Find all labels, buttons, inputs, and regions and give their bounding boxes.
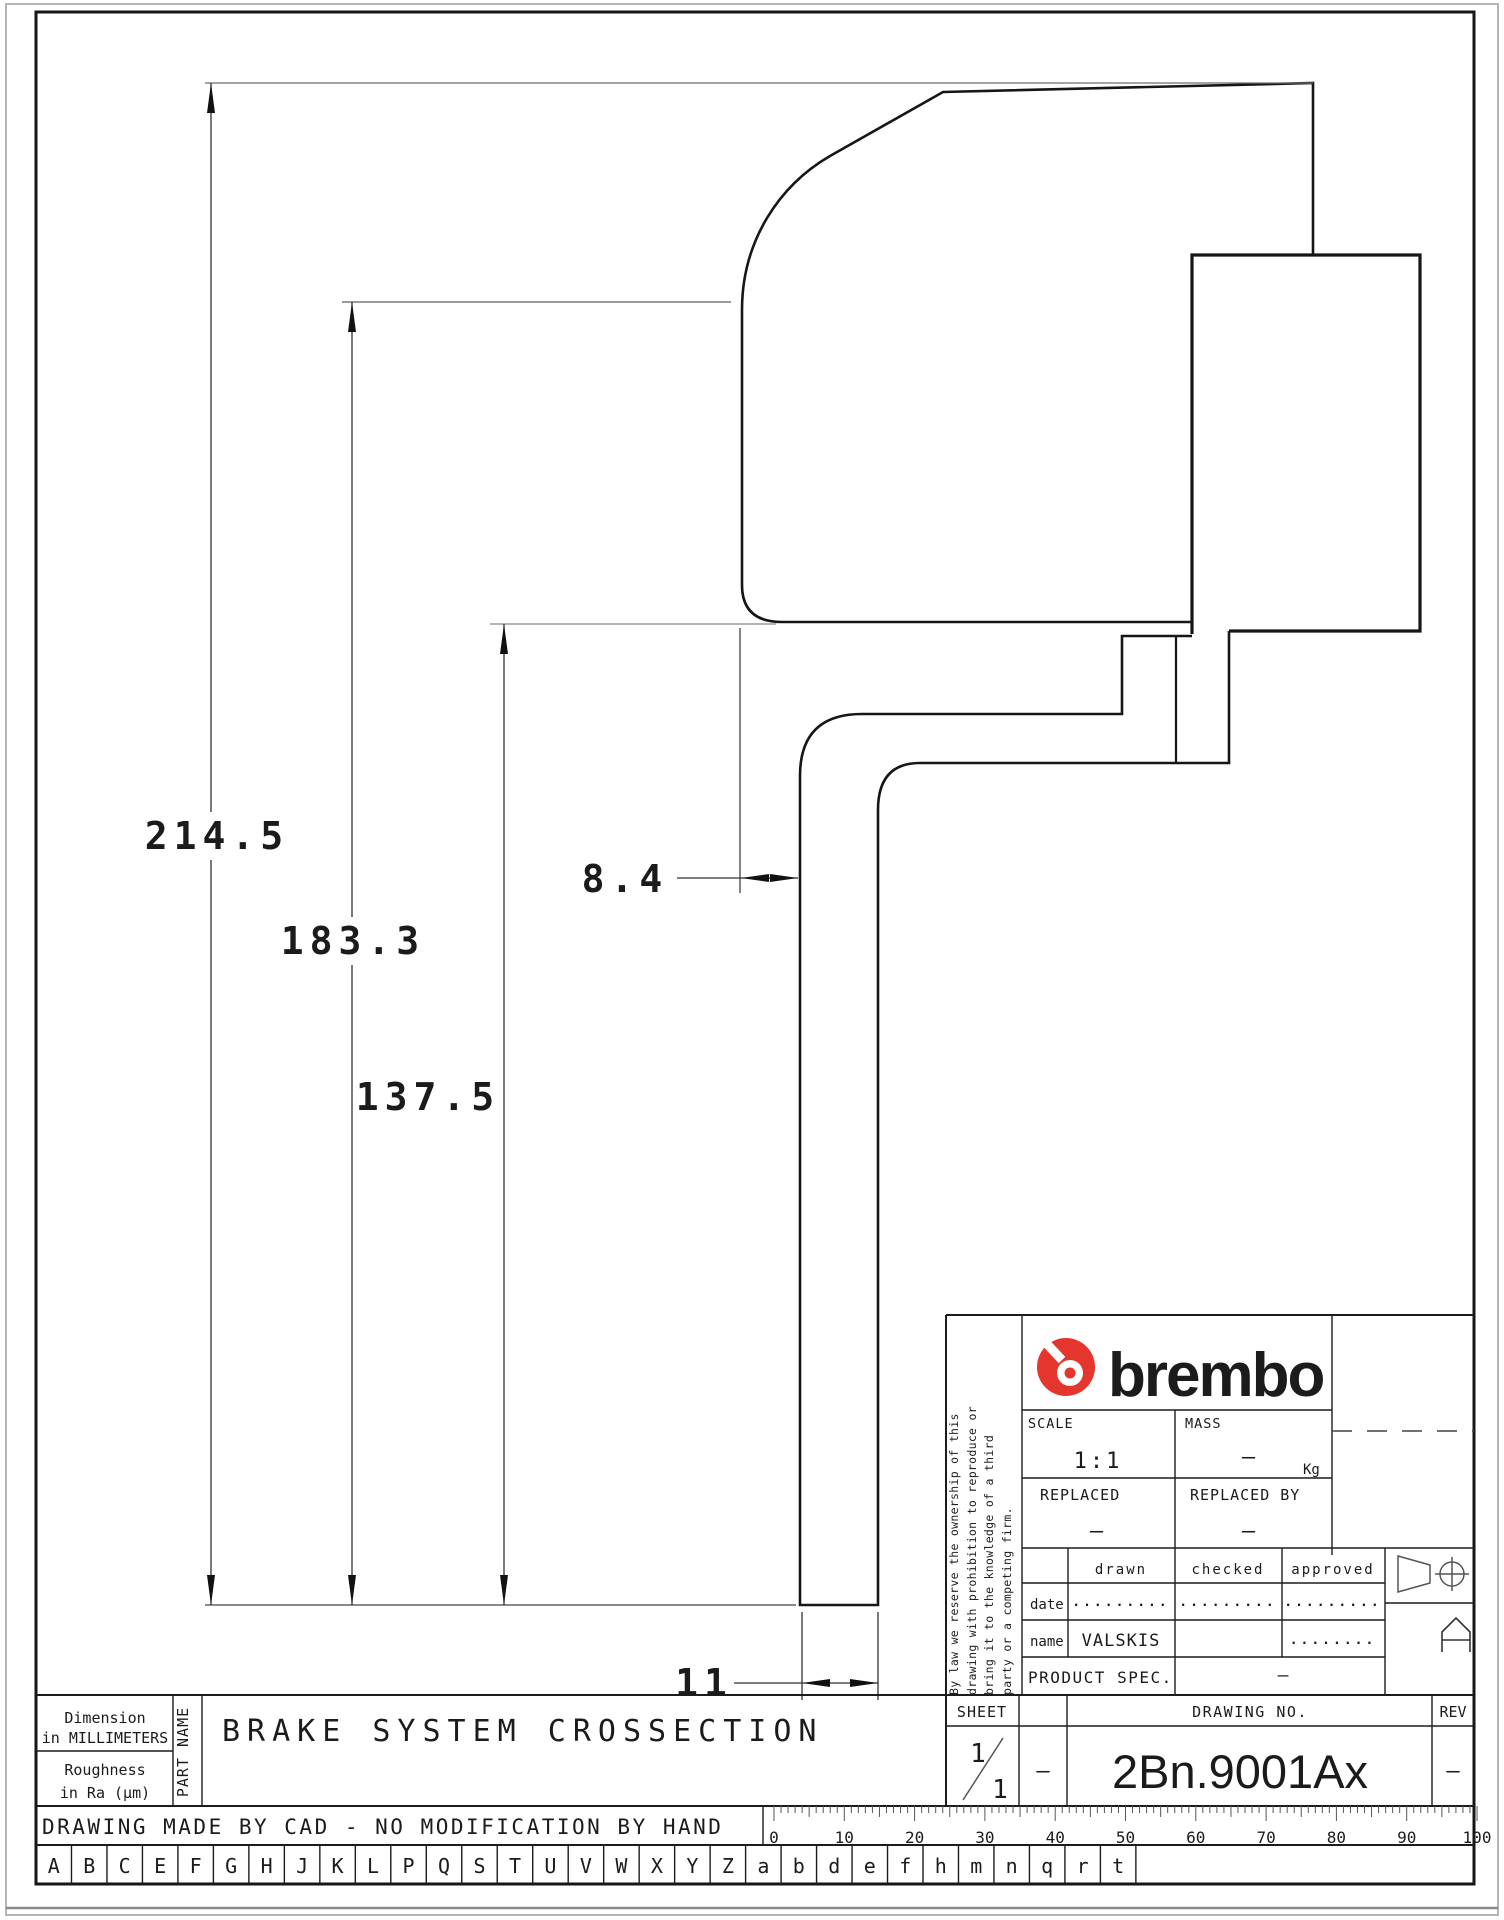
replaced-label: REPLACED <box>1040 1486 1120 1504</box>
format-letter-cell: X <box>651 1854 663 1878</box>
units-note-line1: Dimension <box>64 1709 145 1727</box>
column-checked: checked <box>1191 1562 1264 1578</box>
ruler-label: 40 <box>1046 1828 1065 1847</box>
drawing-no-label: DRAWING NO. <box>1192 1703 1308 1721</box>
projection-symbol-icon <box>1398 1556 1469 1592</box>
format-letter-cell: n <box>1006 1854 1018 1878</box>
format-letter-cell: P <box>403 1854 415 1878</box>
format-letter-cell: f <box>899 1854 911 1878</box>
replaced-by-value: – <box>1242 1519 1258 1544</box>
ownership-disclaimer: By law we reserve the ownership of thisd… <box>946 1315 1022 1695</box>
drawing-canvas: 214.5 183.3 137.5 8.4 11 Dimension in MI… <box>0 0 1504 1920</box>
name-approved-dots: ........ <box>1290 1633 1377 1648</box>
cad-note: DRAWING MADE BY CAD - NO MODIFICATION BY… <box>42 1815 723 1839</box>
format-letter-cell: Q <box>438 1854 450 1878</box>
ruler-label: 100 <box>1463 1828 1492 1847</box>
column-approved: approved <box>1291 1562 1374 1578</box>
format-letter-cell: t <box>1112 1854 1124 1878</box>
format-letter-cell: a <box>757 1854 769 1878</box>
sheet-label: SHEET <box>957 1703 1007 1721</box>
format-letter-cell: r <box>1077 1854 1089 1878</box>
format-letter-cell: F <box>190 1854 202 1878</box>
format-letter-cell: C <box>119 1854 131 1878</box>
format-letter-cell: U <box>544 1854 556 1878</box>
format-letter-cell: T <box>509 1854 521 1878</box>
product-spec-value: – <box>1278 1665 1289 1686</box>
dim-upper-height: 183.3 <box>281 919 425 963</box>
scale-value: 1:1 <box>1074 1449 1123 1474</box>
disclaimer-line: party or a competing firm. <box>999 1315 1017 1695</box>
rev-value: – <box>1446 1759 1460 1784</box>
replaced-value: – <box>1090 1519 1106 1544</box>
ruler-label: 0 <box>769 1828 779 1847</box>
format-letter-cell: Z <box>722 1854 734 1878</box>
dim-leg-width: 11 <box>675 1661 733 1705</box>
date-drawn-dots: ......... <box>1072 1595 1169 1610</box>
format-letter-cell: K <box>332 1854 344 1878</box>
format-a-icon <box>1442 1618 1470 1652</box>
format-letter-cell: G <box>225 1854 237 1878</box>
sheet-denominator: 1 <box>992 1775 1008 1805</box>
column-drawn: drawn <box>1095 1562 1147 1578</box>
cad-drawing-sheet: 214.5 183.3 137.5 8.4 11 Dimension in MI… <box>0 0 1504 1920</box>
pad-block-outline <box>1192 255 1420 634</box>
dim-total-height: 214.5 <box>145 814 289 858</box>
mass-label: MASS <box>1185 1416 1222 1432</box>
caliper-body-outline <box>742 83 1313 622</box>
format-letter-cell: h <box>935 1854 947 1878</box>
ruler-label: 90 <box>1397 1828 1416 1847</box>
ruler-label: 10 <box>835 1828 854 1847</box>
format-letter-cell: Y <box>686 1854 698 1878</box>
dim-wall-offset: 8.4 <box>582 857 669 901</box>
format-letter-cell: m <box>970 1854 982 1878</box>
format-letter-cell: q <box>1041 1854 1053 1878</box>
part-name-title: BRAKE SYSTEM CROSSECTION <box>222 1714 823 1749</box>
ruler-label: 60 <box>1186 1828 1205 1847</box>
brembo-wordmark: brembo <box>1108 1341 1323 1410</box>
ruler-label: 50 <box>1116 1828 1135 1847</box>
format-letter-cell: W <box>615 1854 628 1878</box>
roughness-note-line2: in Ra (µm) <box>60 1784 150 1802</box>
disclaimer-line: bring it to the knowledge of a third <box>981 1315 999 1695</box>
format-letters-row: ABCEFGHJKLPQSTUVWXYZabdefhmnqrt <box>48 1845 1136 1884</box>
ruler-label: 80 <box>1327 1828 1346 1847</box>
drawing-no-value: 2Bn.9001Ax <box>1112 1745 1368 1798</box>
format-letter-cell: V <box>580 1854 592 1878</box>
format-letter-cell: b <box>793 1854 805 1878</box>
disclaimer-line: drawing with prohibition to reproduce or <box>964 1315 982 1695</box>
format-letter-cell: d <box>828 1854 840 1878</box>
ruler-label: 30 <box>975 1828 994 1847</box>
row-date-label: date <box>1030 1597 1064 1613</box>
roughness-note-line1: Roughness <box>64 1761 145 1779</box>
format-letter-cell: J <box>296 1854 308 1878</box>
row-name-label: name <box>1030 1634 1064 1650</box>
format-letter-cell: B <box>83 1854 95 1878</box>
date-checked-dots: ......... <box>1179 1595 1276 1610</box>
mass-value: – <box>1242 1445 1258 1470</box>
format-letter-cell: e <box>864 1854 876 1878</box>
ruler-label: 20 <box>905 1828 924 1847</box>
format-letter-cell: L <box>367 1854 379 1878</box>
mass-unit: Kg <box>1303 1462 1320 1478</box>
part-name-label: PART NAME <box>174 1707 192 1797</box>
dimension-lines <box>205 83 1313 1700</box>
sheet-extra-dash: – <box>1036 1759 1050 1784</box>
brembo-logo: brembo <box>1037 1338 1323 1410</box>
ruler-label: 70 <box>1256 1828 1275 1847</box>
sheet-numerator: 1 <box>970 1739 986 1769</box>
dim-lower-height: 137.5 <box>356 1075 500 1119</box>
format-letter-cell: H <box>261 1854 273 1878</box>
scale-ruler: 0102030405060708090100 <box>769 1806 1491 1847</box>
disclaimer-line: By law we reserve the ownership of this <box>946 1315 964 1695</box>
rev-label: REV <box>1439 1703 1466 1721</box>
units-note-line2: in MILLIMETERS <box>42 1729 168 1747</box>
product-spec-label: PRODUCT SPEC. <box>1028 1668 1173 1687</box>
format-letter-cell: A <box>48 1854 60 1878</box>
date-approved-dots: ......... <box>1284 1595 1381 1610</box>
page-edge <box>6 4 1498 1915</box>
replaced-by-label: REPLACED BY <box>1190 1486 1300 1504</box>
name-drawn-value: VALSKIS <box>1082 1631 1161 1651</box>
scale-label: SCALE <box>1028 1416 1074 1432</box>
format-letter-cell: S <box>473 1854 485 1878</box>
format-letter-cell: E <box>154 1854 166 1878</box>
dimension-arrows <box>207 83 878 1687</box>
